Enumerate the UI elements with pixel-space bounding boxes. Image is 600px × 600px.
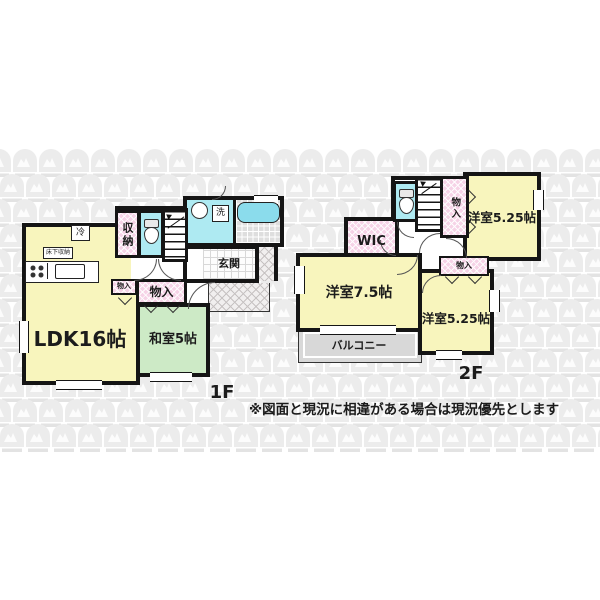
f2-balcony-label: バルコニー xyxy=(300,338,418,352)
f2-wic-label: WIC xyxy=(348,232,395,250)
f2-room-525-top-label: 洋室5.25帖 xyxy=(467,210,537,226)
f1-kitchen-sink-icon xyxy=(55,264,85,279)
f1-toilet-bowl xyxy=(144,227,159,244)
f2-closet-vert-label: 物入 xyxy=(445,190,464,226)
f1-washitsu-label: 和室5帖 xyxy=(140,330,206,348)
f1-genkan-label: 玄関 xyxy=(205,252,253,274)
f2-window-525btm-bottom xyxy=(436,350,462,360)
f1-floor-label: 1F xyxy=(206,383,238,403)
f2-room-75-label: 洋室7.5帖 xyxy=(300,284,418,302)
f1-shuno-label: 収納 xyxy=(117,216,138,254)
f1-window-left xyxy=(19,321,29,353)
f1-window-ldk-bottom xyxy=(56,380,102,390)
f2-room-525-btm-label: 洋室5.25帖 xyxy=(422,311,490,327)
f1-stove-icon xyxy=(27,263,48,279)
f1-fridge-label: 冷 xyxy=(71,225,90,241)
f2-window-525top-right xyxy=(533,190,544,210)
f1-laundry-label: 洗 xyxy=(212,205,229,222)
f2-floor-label: 2F xyxy=(454,364,488,384)
f1-washbasin-icon xyxy=(191,202,208,219)
f1-toilet-icon xyxy=(143,219,159,244)
f1-underfloor-storage-label: 床下収納 xyxy=(43,247,73,259)
f1-bathtub-icon xyxy=(237,202,280,223)
f2-closet-btm-label: 物入 xyxy=(441,259,487,272)
f1-window-washitsu-bottom xyxy=(150,372,192,382)
f1-closet-small-label: 物入 xyxy=(112,280,136,292)
f1-ldk-label: LDK16帖 xyxy=(30,325,130,353)
f2-window-525btm-right xyxy=(489,290,500,312)
f2-toilet-icon xyxy=(398,189,414,214)
f2-toilet-bowl xyxy=(399,197,414,214)
f1-porch xyxy=(208,283,270,312)
floorplan-canvas: 洗 冷 床下収納 LDK16帖 和室5帖 収納 玄関 物入 物入 1F xyxy=(0,0,600,600)
f1-closet-hall-label: 物入 xyxy=(139,283,184,301)
disclaimer-note: ※図面と現況に相違がある場合は現況優先とします xyxy=(249,398,559,418)
f2-window-75-balcony xyxy=(320,325,396,335)
